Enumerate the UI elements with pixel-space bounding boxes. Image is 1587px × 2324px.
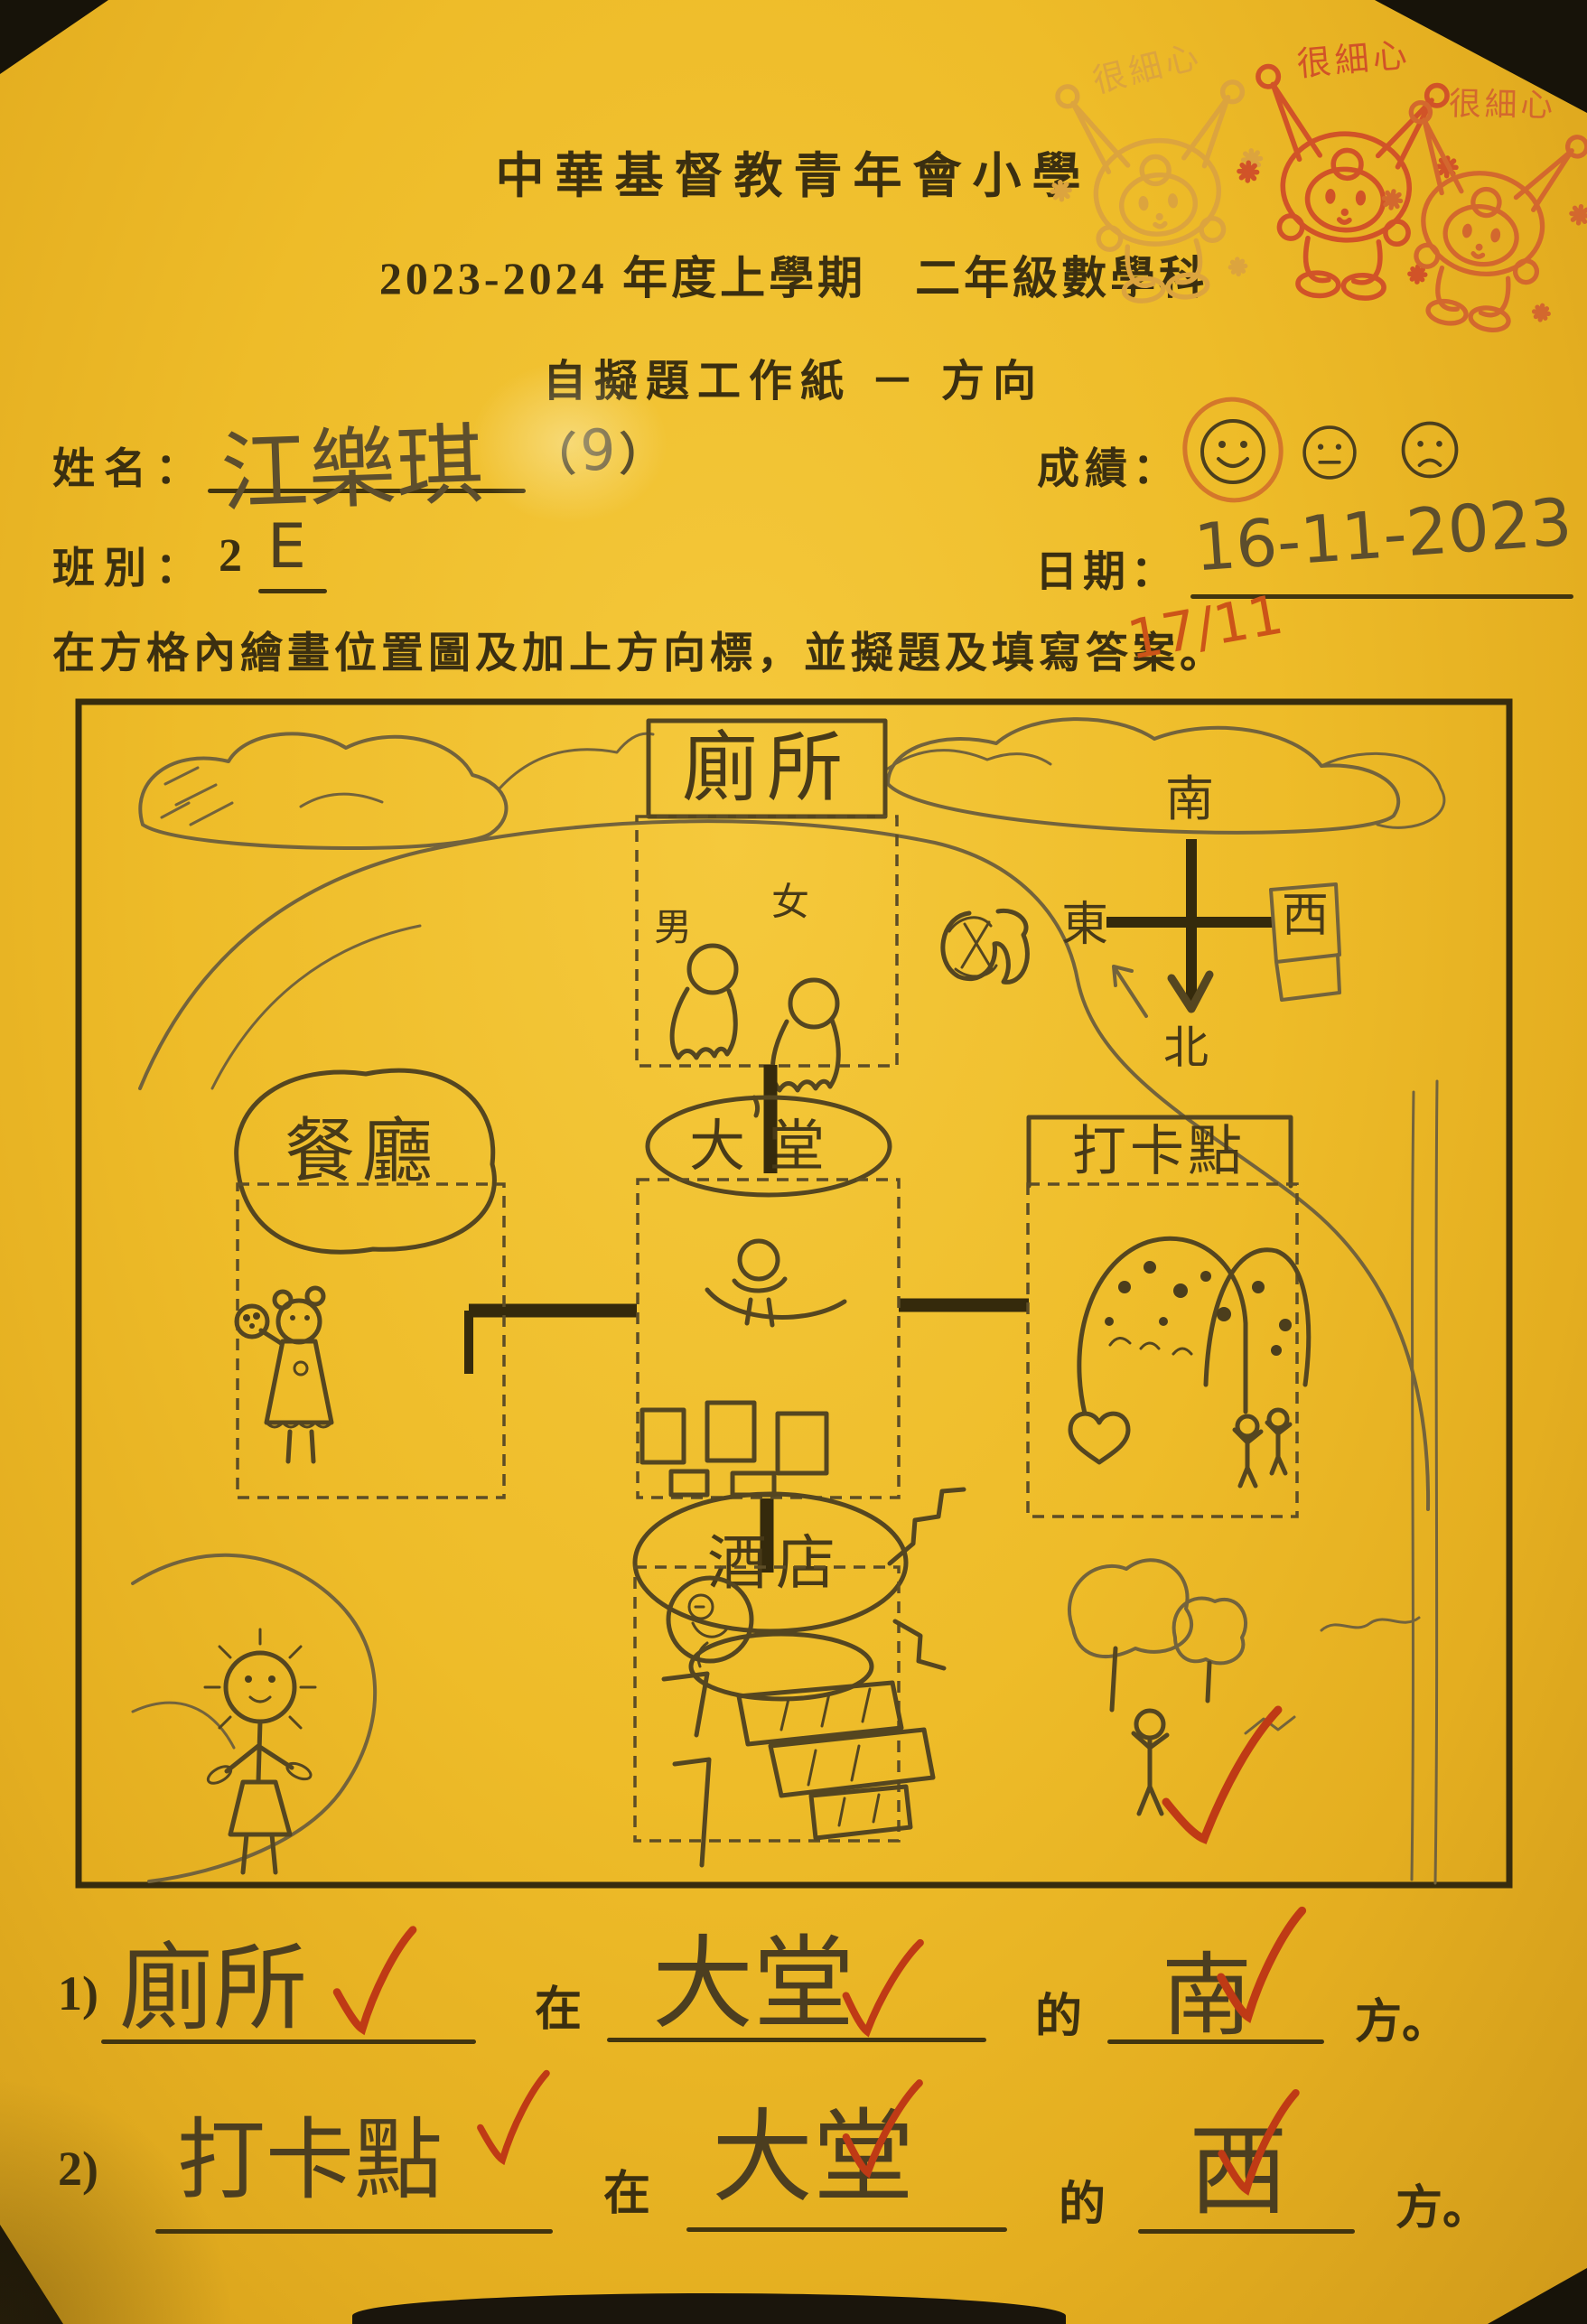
lobby-location: 大堂 — [638, 1097, 899, 1498]
date-label: 日期： — [1035, 537, 1179, 599]
worksheet-title: 自擬題工作紙 － 方向 — [0, 345, 1587, 408]
kuromi-stamp-icon: 很細心 — [1362, 68, 1587, 350]
svg-text:很細心: 很細心 — [1295, 34, 1412, 84]
luggage-boxes — [642, 1403, 826, 1495]
tree-figure — [1134, 1711, 1167, 1814]
instruction-text: 在方格內繪畫位置圖及加上方向標，並擬題及填寫答案。 — [52, 618, 1227, 680]
cloud-left — [140, 733, 506, 848]
q2-number: 2) — [58, 2141, 98, 2197]
neutral-face-icon — [1297, 420, 1362, 485]
worksheet-photo: 中華基督教青年會小學 2023-2024 年度上學期 二年級數學科 自擬題工作紙… — [0, 0, 1587, 2324]
student-number: （ 9 ） — [531, 417, 664, 483]
paren-open: （ — [531, 429, 576, 480]
lobby-label: 大堂 — [689, 1113, 848, 1179]
compass-north: 北 — [1163, 1022, 1209, 1074]
red-checkmark-icon — [1210, 2085, 1305, 2209]
q1-reference-handwritten: 大堂 — [652, 1902, 854, 2049]
step-blocks — [739, 1683, 933, 1838]
q2-suffix: 方。 — [1396, 2170, 1489, 2237]
trees — [1069, 1560, 1246, 1710]
lobby-area — [638, 1180, 899, 1498]
restaurant-label: 餐廳 — [285, 1111, 440, 1192]
red-checkmark-icon — [832, 1930, 930, 2054]
toilet-figure-female: 女 — [771, 880, 838, 1090]
lobby-figure — [707, 1241, 845, 1325]
q2-blank1-underline — [155, 2229, 553, 2234]
compass: 南 東 西 北 — [1061, 770, 1340, 1074]
hotel-location: 酒店 — [635, 1489, 964, 1865]
toilet-location: 廁所 男 女 — [637, 721, 897, 1115]
name-handwritten: 江樂琪 — [219, 393, 486, 529]
teacher-circle-mark — [1179, 396, 1287, 504]
waitress-figure — [237, 1288, 331, 1461]
right-path-lines — [1246, 1081, 1437, 1883]
red-checkmark-icon — [470, 2067, 555, 2177]
toilet-figure-male: 男 — [654, 905, 736, 1058]
name-label: 姓名： — [52, 434, 207, 496]
q1-in: 在 — [535, 1971, 582, 2039]
compass-west: 西 — [1282, 889, 1329, 943]
flower-person — [205, 1629, 315, 1872]
red-checkmark-icon — [1209, 1902, 1312, 2038]
map-grade-check-icon — [1166, 1710, 1278, 1839]
svg-text:女: 女 — [771, 880, 809, 924]
class-underline — [258, 589, 327, 593]
q1-suffix: 方。 — [1355, 1983, 1449, 2051]
q1-subject-handwritten: 廁所 — [119, 1911, 307, 2048]
class-label: 班別： — [52, 533, 207, 595]
compass-east: 東 — [1061, 898, 1108, 952]
toilet-label: 廁所 — [682, 723, 852, 812]
class-prefix: 2 — [219, 529, 242, 583]
q2-blank2-underline — [686, 2227, 1007, 2232]
map-drawing-box: 廁所 男 女 南 東 西 北 — [75, 698, 1513, 1889]
checkin-label: 打卡點 — [1072, 1120, 1246, 1183]
paren-close: ） — [619, 429, 664, 480]
compass-south: 南 — [1165, 770, 1214, 827]
small-arrow — [1114, 966, 1146, 1016]
score-label: 成績： — [1037, 434, 1181, 496]
happy-face-icon — [1179, 396, 1287, 504]
class-handwritten: E — [267, 511, 306, 583]
hotel-label: 酒店 — [707, 1528, 845, 1598]
hotel-area — [635, 1567, 899, 1841]
q1-number: 1) — [58, 1965, 98, 2021]
rocks-drawing — [1079, 1238, 1309, 1414]
tourist-figures — [1235, 1410, 1290, 1486]
q2-of: 的 — [1059, 2166, 1106, 2234]
q2-in: 在 — [603, 2155, 650, 2223]
svg-text:男: 男 — [654, 905, 692, 949]
q1-of: 的 — [1035, 1978, 1082, 2046]
red-checkmark-icon — [833, 2071, 929, 2193]
ladder-shapes — [664, 1674, 709, 1865]
restaurant-location: 餐廳 — [237, 1070, 504, 1498]
heart-icon — [1070, 1414, 1128, 1462]
svg-text:很細心: 很細心 — [1449, 86, 1557, 125]
checkin-area — [1028, 1184, 1297, 1517]
q2-subject-handwritten: 打卡點 — [177, 2088, 443, 2217]
pencil-scribble — [943, 910, 1028, 982]
sad-face-icon — [1396, 415, 1464, 484]
red-checkmark-icon — [325, 1922, 423, 2049]
student-number-handwritten: 9 — [580, 417, 615, 483]
